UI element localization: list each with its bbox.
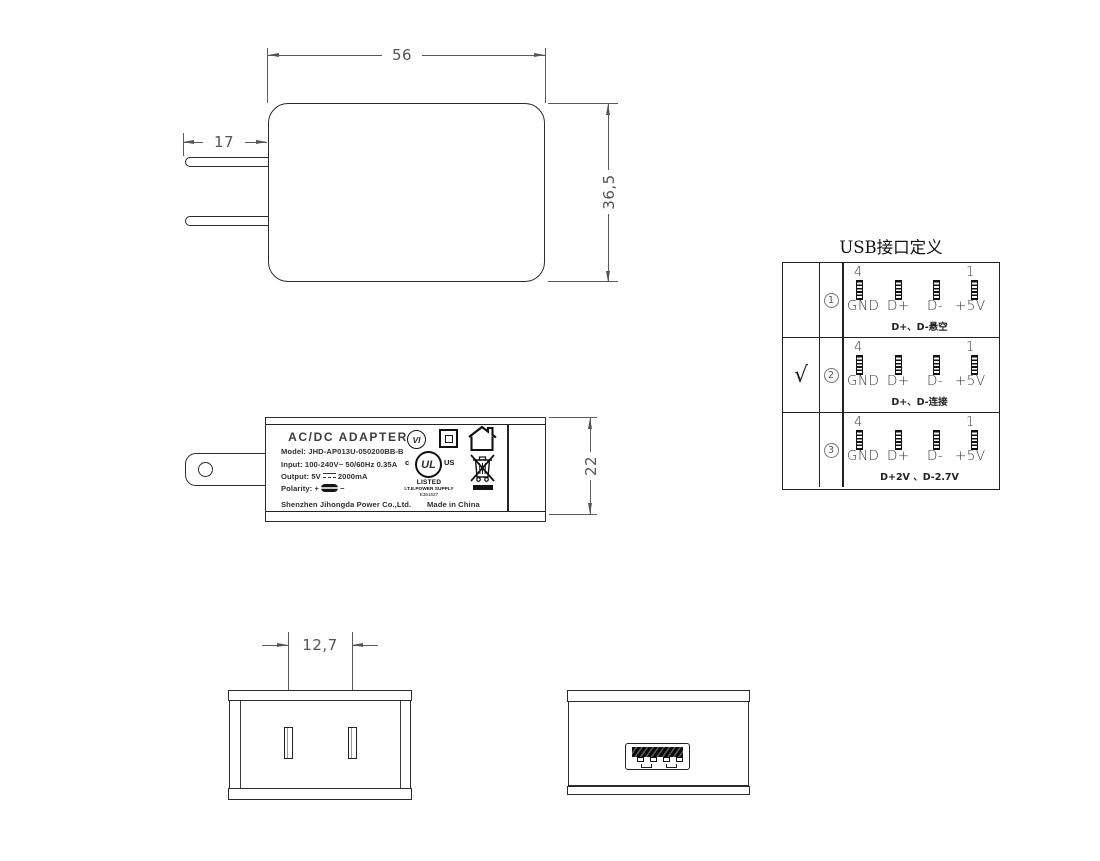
label-model: Model: JHD-AP013U-050200BB-B [281,447,404,456]
pin-label-dplus: D+ [887,448,910,464]
arrow-down-icon [588,503,592,514]
pin-icon [895,355,902,375]
pin-icon [856,355,863,375]
dim-front-height: 36,5 [601,170,617,214]
label-polarity: Polarity: +− [281,484,345,493]
pin-label-dminus: D- [927,373,943,389]
usb-shell-notch [641,764,652,768]
pin-diagram: 4 1 GND D+ D- +5V D+2V 、D-2.7V [844,413,999,487]
arrow-up-icon [588,418,592,429]
arrow-down-icon [606,271,610,282]
pin-icon [971,430,978,450]
pin-icon [933,355,940,375]
pin-icon [895,280,902,300]
pin-number-1: 1 [966,265,974,280]
row-note: D+2V 、D-2.7V [844,469,995,483]
table-row: 3 4 1 GND D+ D- +5V D+2V 、D-2.7V [783,413,999,487]
case-cap-bottom [567,786,750,795]
table-row: 1 4 1 GND D+ D- +5V D+、D-悬空 [783,263,999,338]
case-cap-bottom [228,788,412,800]
pin-label-gnd: GND [847,298,879,314]
arrow-left-icon [352,643,363,647]
extension-line [549,514,597,515]
pin-label-dminus: D- [927,448,943,464]
pin-label-gnd: GND [847,373,879,389]
extension-line [183,133,184,156]
label-company: Shenzhen Jihongda Power Co.,Ltd. [281,500,411,509]
ul-file-number: E361627 [411,492,447,497]
pin-icon [933,430,940,450]
pin-diagram: 4 1 GND D+ D- +5V D+、D-连接 [844,338,999,412]
prong-hole [198,462,213,477]
usb-table-title: USB接口定义 [782,234,1000,258]
adapter-body-front [268,103,545,282]
pin-label-dplus: D+ [887,298,910,314]
check-cell [783,263,820,337]
dim-side-height: 22 [583,452,599,480]
pin-number-1: 1 [966,415,974,430]
pin-icon [933,280,940,300]
label-edge-line [507,424,509,511]
circled-number: 3 [824,443,839,458]
label-output: Output: 5V2000mA [281,472,368,481]
plug-blade-left [284,727,293,759]
row-note: D+、D-悬空 [844,319,995,333]
dim-blade-spacing: 12,7 [293,637,347,653]
pin-number-4: 4 [854,265,862,280]
arrow-right-icon [277,643,288,647]
pin-number-1: 1 [966,340,974,355]
row-note: D+、D-连接 [844,394,995,408]
pin-icon [971,280,978,300]
usb-shell-notch [666,764,677,768]
index-cell: 1 [820,263,844,337]
pin-label-5v: +5V [955,373,986,389]
index-cell: 2 [820,338,844,412]
rating-label: AC/DC ADAPTER Model: JHD-AP013U-050200BB… [270,425,507,511]
class-ii-icon [439,429,458,448]
case-inner-line [240,701,241,788]
ul-c-text: c [405,458,409,467]
dim-front-width: 56 [382,47,422,63]
usb-contact-pin [663,757,670,762]
pin-number-4: 4 [854,340,862,355]
extension-line [545,48,546,103]
index-cell: 3 [820,413,844,487]
pin-label-gnd: GND [847,448,879,464]
arrow-right-icon [534,53,545,57]
ul-listed-text: LISTED [412,479,446,486]
pin-label-dminus: D- [927,298,943,314]
usb-contact-pin [637,757,644,762]
weee-bar-icon [473,485,493,490]
arrow-right-icon [256,140,267,144]
circled-number: 1 [824,293,839,308]
ul-logo-icon: UL [415,451,442,478]
dc-symbol-icon [323,473,336,478]
circled-number: 2 [824,368,839,383]
efficiency-vi-icon: VI [407,430,426,449]
case-inner-line [400,701,401,788]
pin-icon [856,430,863,450]
plug-prong-top [185,157,269,167]
usb-contact-pin [650,757,657,762]
ul-us-text: US [444,458,454,467]
arrow-left-icon [183,140,194,144]
usb-tongue [632,747,683,757]
table-row: √ 2 4 1 GND D+ D- +5V D+、D-连接 [783,338,999,413]
arrow-left-icon [268,53,279,57]
label-input: Input: 100-240V~ 50/60Hz 0.35A [281,460,397,469]
pin-label-5v: +5V [955,448,986,464]
dim-prong-length: 17 [203,134,245,150]
indoor-use-house-icon [467,425,498,452]
check-cell: √ [783,338,820,412]
usb-connector-icon [321,484,338,492]
label-made-in: Made in China [427,500,480,509]
weee-bin-icon [470,453,495,484]
pin-number-4: 4 [854,415,862,430]
ul-type-text: I.T.E.POWER SUPPLY [399,487,459,492]
label-title: AC/DC ADAPTER [284,430,412,444]
arrow-up-icon [606,104,610,115]
plug-prong-bottom [185,216,269,226]
case-body [229,700,411,789]
usb-contact-pin [676,757,683,762]
pin-diagram: 4 1 GND D+ D- +5V D+、D-悬空 [844,263,999,337]
plug-blade-right [348,727,357,759]
pin-icon [895,430,902,450]
usb-pinout-table: 1 4 1 GND D+ D- +5V D+、D-悬空 √ [782,262,1000,490]
check-cell [783,413,820,487]
pin-label-5v: +5V [955,298,986,314]
pin-label-dplus: D+ [887,373,910,389]
adapter-technical-drawing: 56 17 36,5 AC/DC ADAPTER Model: JHD-AP01… [0,0,1100,861]
pin-icon [971,355,978,375]
pin-icon [856,280,863,300]
